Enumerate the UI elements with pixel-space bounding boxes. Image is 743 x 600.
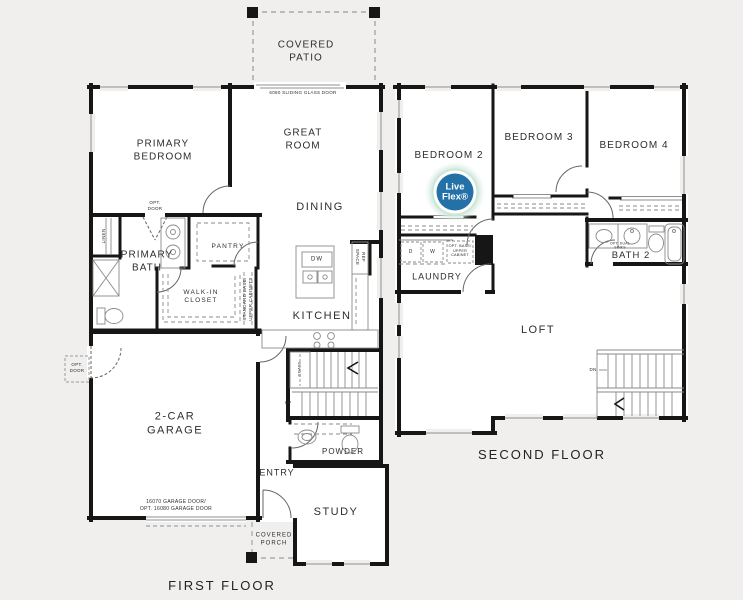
second-floor-title: SECOND FLOOR	[478, 447, 606, 463]
label-linen: LINEN	[101, 229, 107, 244]
live-flex-badge: Live Flex®	[437, 174, 474, 211]
patio-post	[247, 7, 258, 18]
label-study: STUDY	[314, 506, 359, 520]
label-dryer: D	[409, 249, 414, 255]
label-ref-space: REF SPACE	[354, 249, 366, 265]
garage-door-opening	[146, 514, 246, 522]
label-dishwasher: DW	[311, 256, 323, 264]
label-coats: COATS	[296, 362, 301, 377]
chase	[475, 235, 493, 265]
porch-post	[246, 552, 257, 563]
label-pantry: PANTRY	[212, 243, 245, 251]
label-garage: 2-CAR GARAGE	[147, 410, 203, 438]
label-cabinets-note: STANDARD BASE/ UPPER CABINETS	[242, 277, 254, 320]
label-powder: POWDER	[322, 447, 364, 457]
floor-plan-page: COVERED PATIO 6080 SLIDING GLASS DOOR PR…	[0, 0, 743, 600]
label-bedroom-2: BEDROOM 2	[414, 150, 483, 163]
label-covered-patio: COVERED PATIO	[278, 40, 334, 65]
label-garage-door-note: 16070 GARAGE DOOR/ OPT. 16080 GARAGE DOO…	[140, 499, 212, 513]
label-down: DN	[589, 367, 596, 373]
label-entry: ENTRY	[259, 467, 294, 478]
label-primary-bedroom: PRIMARY BEDROOM	[134, 139, 193, 164]
label-opt-door-bath: OPT. DOOR	[148, 200, 163, 212]
label-primary-bath: PRIMARY BATH	[121, 250, 173, 275]
label-bedroom-4: BEDROOM 4	[599, 140, 668, 153]
label-great-room: GREAT ROOM	[284, 128, 323, 153]
floor-plan-drawing	[0, 0, 743, 600]
label-opt-door-garage: OPT. DOOR	[70, 362, 85, 374]
label-walk-in-closet: WALK-IN CLOSET	[183, 289, 218, 305]
label-kitchen: KITCHEN	[293, 310, 352, 324]
label-dining: DINING	[296, 201, 344, 215]
label-sliding-door-note: 6080 SLIDING GLASS DOOR	[269, 90, 336, 96]
patio-post	[369, 7, 380, 18]
label-washer: W	[430, 249, 436, 255]
first-floor-title: FIRST FLOOR	[168, 578, 276, 594]
label-laundry-cabinet-note: OPT. BASE/ UPPER CABINET	[449, 244, 472, 258]
label-bath-2: BATH 2	[612, 250, 651, 262]
label-bath2-note: OPT. DUAL SINKS	[610, 242, 630, 251]
label-up: UP	[285, 400, 292, 406]
label-loft: LOFT	[521, 324, 555, 338]
label-covered-porch: COVERED PORCH	[256, 533, 293, 548]
label-laundry: LAUNDRY	[412, 271, 462, 282]
label-bedroom-3: BEDROOM 3	[504, 132, 573, 145]
first-floor-plan	[65, 7, 387, 568]
